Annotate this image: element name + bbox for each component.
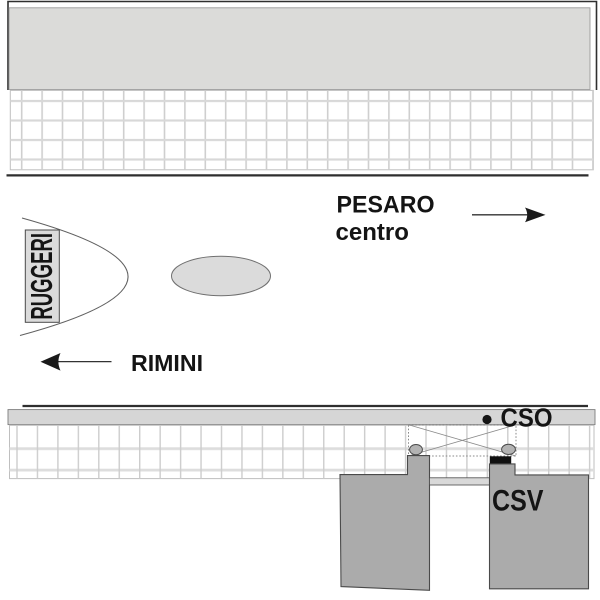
svg-text:RUGGERI: RUGGERI (26, 233, 60, 320)
svg-text:RIMINI: RIMINI (131, 350, 203, 376)
svg-text:PESARO: PESARO (337, 192, 435, 219)
svg-text:CSO: CSO (501, 404, 553, 432)
svg-text:CSV: CSV (492, 485, 544, 518)
svg-text:centro: centro (336, 219, 409, 246)
